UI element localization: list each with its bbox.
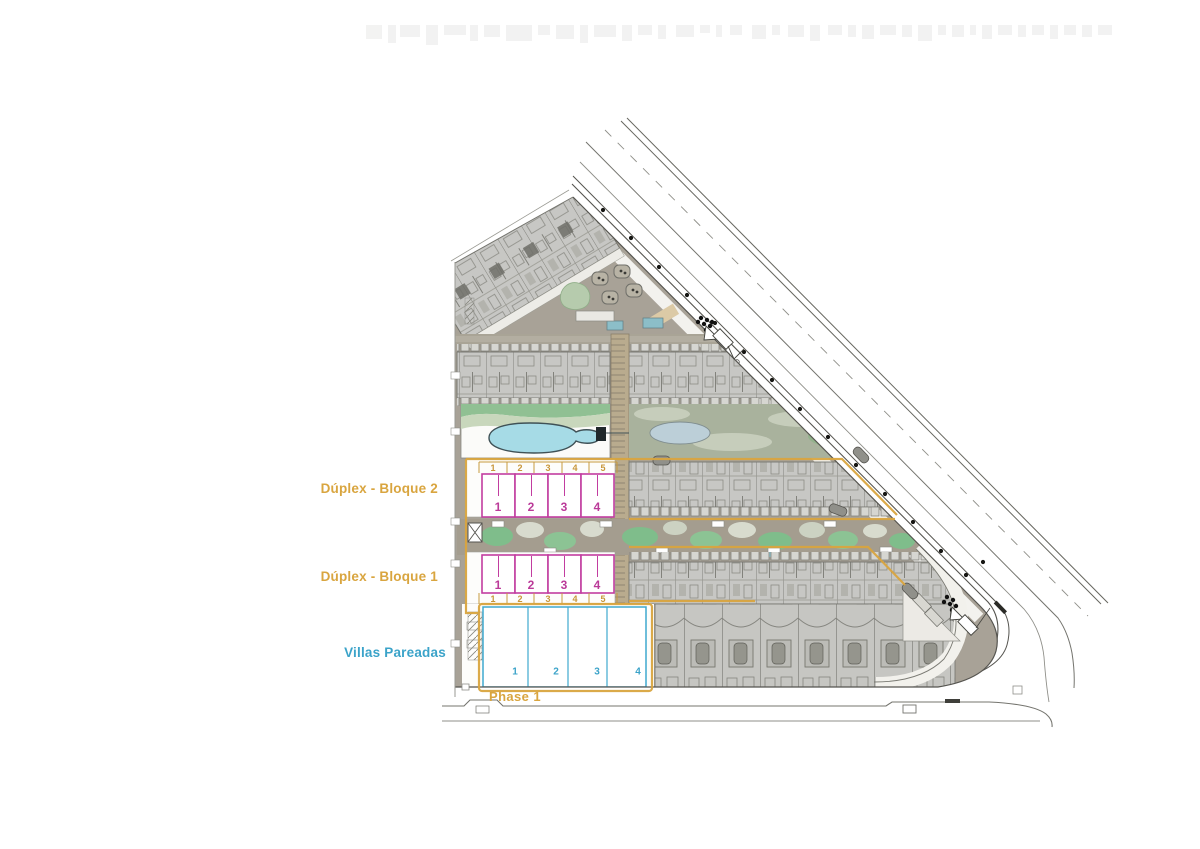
- lawn-blob: [560, 283, 589, 310]
- site-plan-page: Dúplex - Bloque 2 Dúplex - Bloque 1 Vill…: [0, 0, 1200, 849]
- pool-garden-strip: [461, 404, 899, 458]
- pond: [650, 422, 710, 444]
- east-west-walkway: [455, 334, 745, 344]
- landscape-strip: [457, 519, 942, 557]
- bloque2-duplex-cells: [482, 474, 614, 517]
- pergola: [576, 311, 614, 321]
- water-feature-small: [607, 321, 623, 330]
- villas-outline: [483, 607, 646, 687]
- road-label-mark: [945, 699, 960, 703]
- bloque1-duplex-cells: [482, 555, 614, 593]
- site-plan-drawing: [0, 0, 1200, 849]
- apartment-row-upper: [457, 344, 829, 406]
- top-edge-fragments: [366, 25, 1112, 45]
- pool-platform: [596, 427, 606, 441]
- bloque1-row: [465, 552, 959, 604]
- water-feature-small-2: [643, 318, 663, 328]
